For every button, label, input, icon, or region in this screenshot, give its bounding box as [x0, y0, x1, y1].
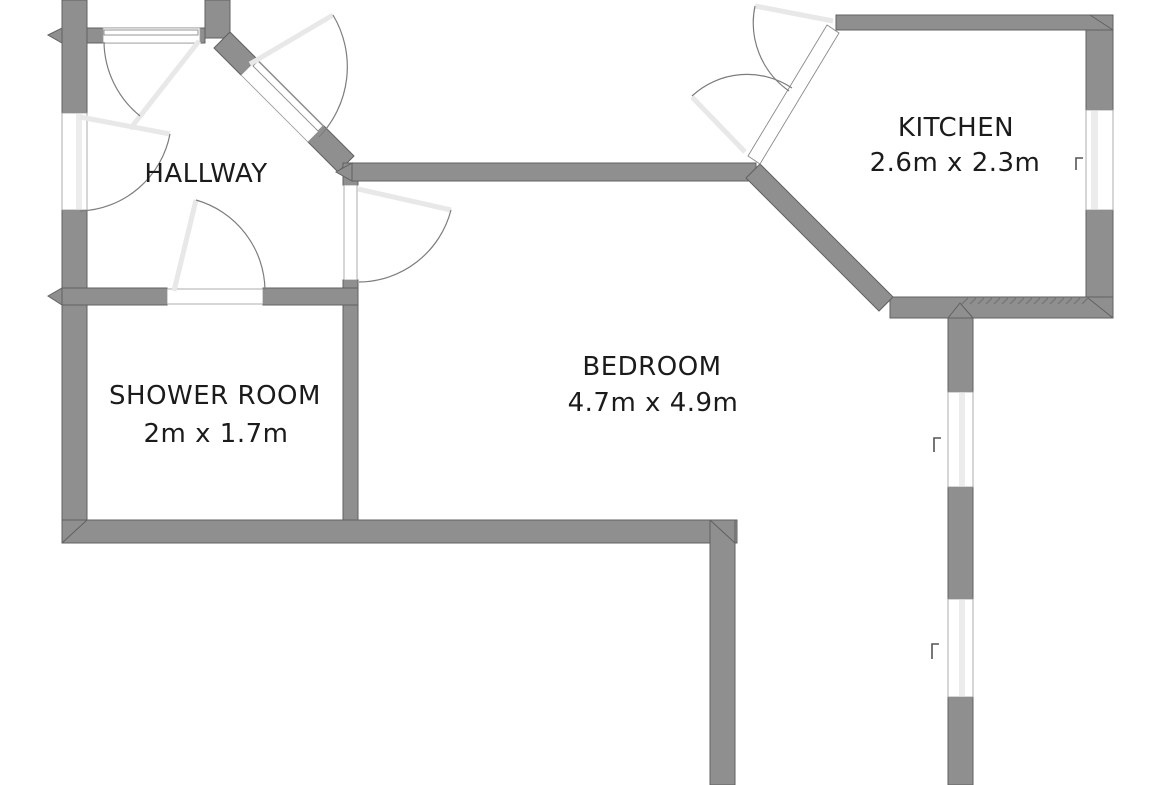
- wall-top-stub: [205, 0, 230, 38]
- wall-east-lower: [948, 697, 973, 785]
- kitchen-dimensions: 2.6m x 2.3m: [870, 148, 1041, 178]
- bedroom-dimensions: 4.7m x 4.9m: [568, 388, 739, 418]
- wall-left-lower: [62, 210, 87, 543]
- kitchen-label: KITCHEN: [898, 113, 1014, 143]
- floor-plan-drawing: HALLWAY KITCHEN 2.6m x 2.3m SHOWER ROOM …: [0, 0, 1170, 785]
- door-kitchen-double: [692, 6, 839, 164]
- wall-kitchen-bottom: [890, 297, 1113, 318]
- floor-plan: HALLWAY KITCHEN 2.6m x 2.3m SHOWER ROOM …: [0, 0, 1170, 785]
- window-handle-icon: [1076, 158, 1083, 170]
- wall-shower-top-right: [263, 288, 358, 305]
- window-handle-icon: [934, 438, 941, 452]
- window-hallway-left: [62, 113, 87, 210]
- wall-kitchen-right-upper: [1086, 30, 1113, 110]
- bedroom-label: BEDROOM: [582, 352, 721, 382]
- door-hallway-diagonal: [241, 15, 347, 142]
- wall-left-upper: [62, 0, 87, 113]
- door-shower-room: [167, 200, 265, 304]
- wall-kitchen-top: [836, 15, 1113, 30]
- wall-bedroom-north: [352, 163, 756, 181]
- shower-room-label: SHOWER ROOM: [109, 381, 321, 411]
- doors: [80, 6, 839, 304]
- door-hallway-top: [103, 28, 200, 129]
- wall-south-return: [710, 520, 735, 785]
- bevel-left-mid-junction: [48, 288, 62, 305]
- window-bedroom-east-1: [934, 392, 973, 487]
- wall-kitchen-right-lower: [1086, 210, 1113, 298]
- window-handle-icon: [932, 644, 939, 659]
- window-bedroom-east-2: [932, 599, 973, 697]
- wall-bedroom-west: [343, 280, 358, 543]
- door-bedroom: [344, 185, 451, 282]
- window-kitchen-right: [1076, 110, 1113, 210]
- shower-room-dimensions: 2m x 1.7m: [144, 419, 289, 449]
- wall-south: [62, 520, 737, 543]
- wall-east-mid: [948, 487, 973, 599]
- wall-shower-top-left: [62, 288, 167, 305]
- wall-east-upper: [948, 318, 973, 392]
- hallway-label: HALLWAY: [144, 159, 267, 189]
- bevel-left-top-junction: [48, 28, 62, 43]
- wall-kitchen-diagonal: [746, 164, 893, 311]
